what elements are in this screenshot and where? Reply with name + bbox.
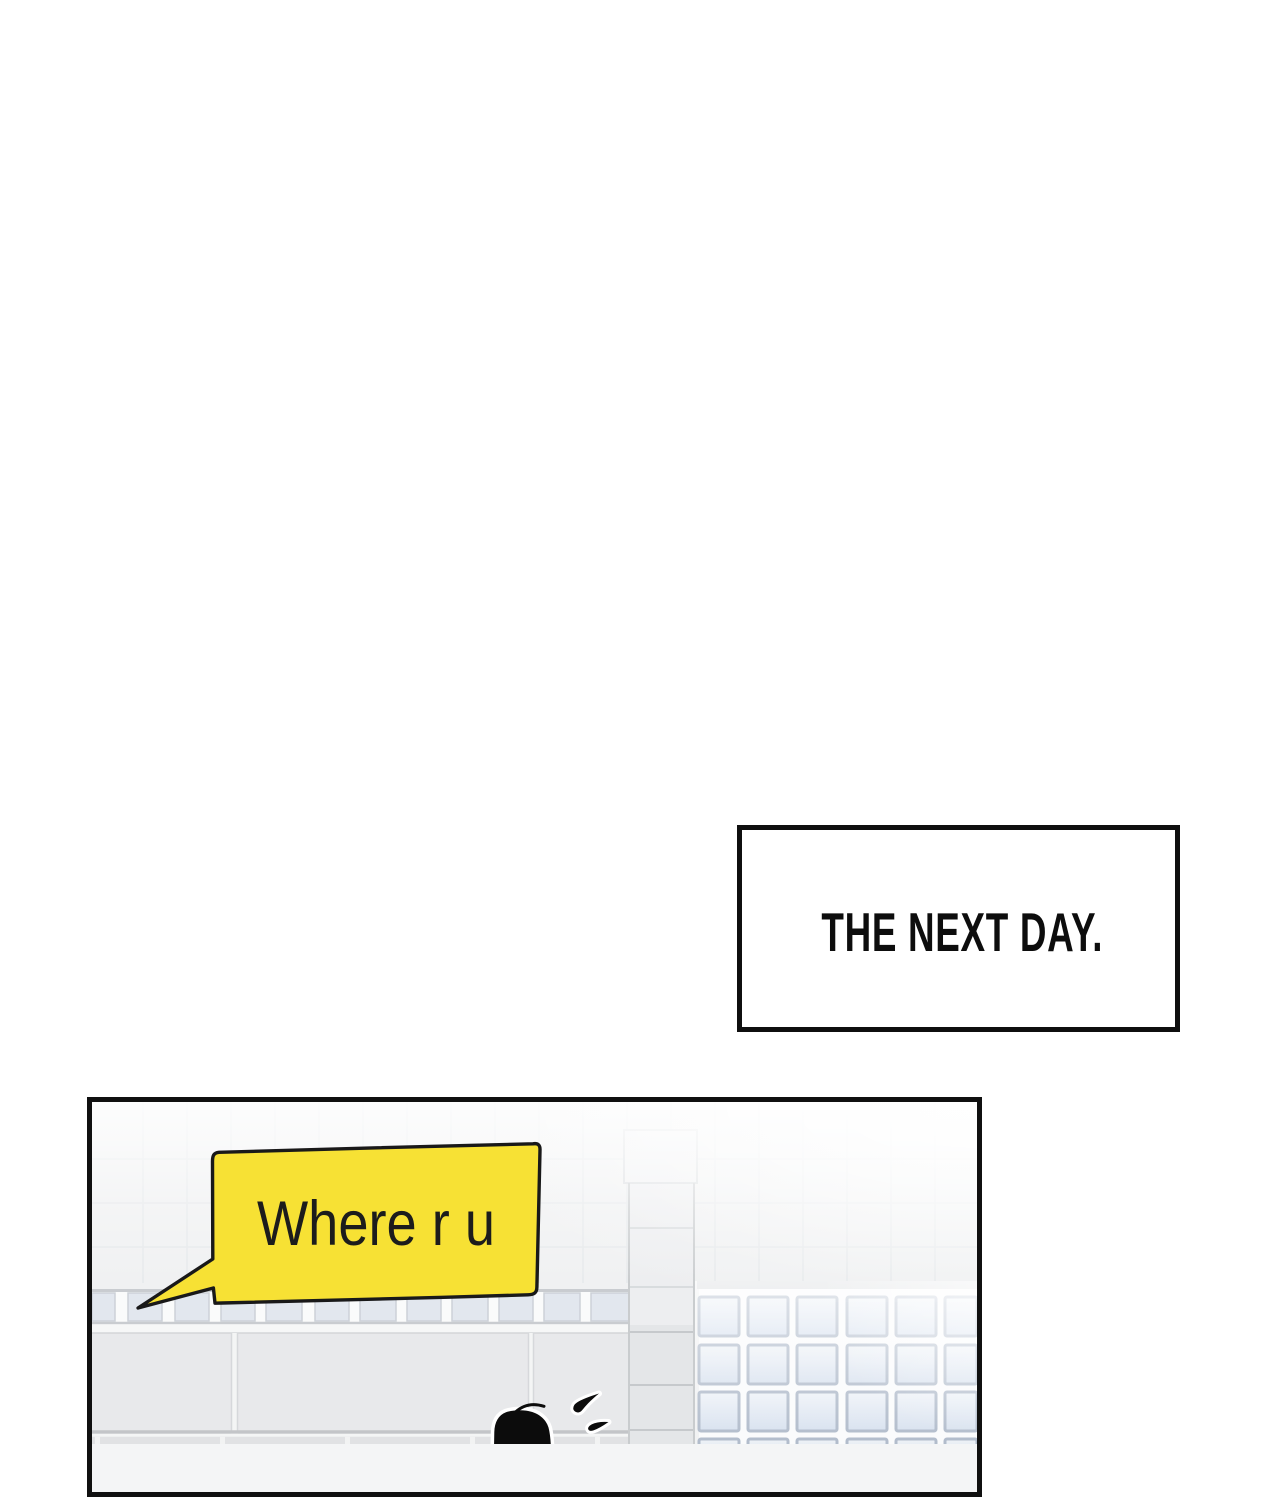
svg-text:Where r u: Where r u (257, 1189, 495, 1259)
